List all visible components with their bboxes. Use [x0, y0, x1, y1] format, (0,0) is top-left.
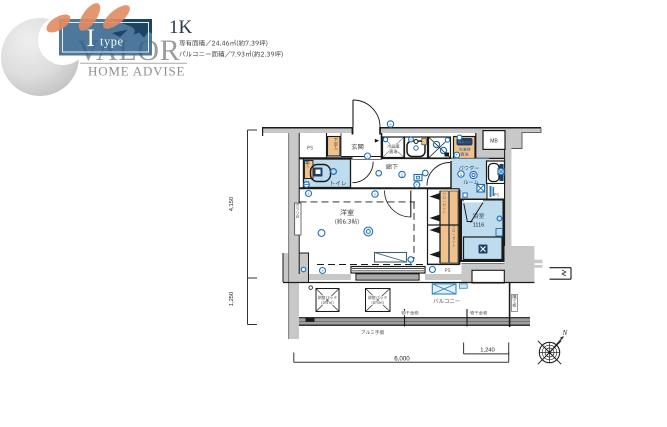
svg-text:−: − — [366, 154, 369, 159]
svg-text:1116: 1116 — [473, 223, 484, 229]
svg-text:1: 1 — [401, 172, 404, 178]
svg-text:I: I — [87, 25, 95, 52]
svg-text:1,250: 1,250 — [229, 292, 235, 307]
svg-text:+: + — [321, 268, 324, 273]
svg-text:+: + — [415, 183, 418, 188]
svg-text:N: N — [562, 329, 568, 337]
svg-text:+: + — [410, 138, 412, 142]
svg-text:HOME ADVISE: HOME ADVISE — [88, 64, 185, 79]
svg-text:1,240: 1,240 — [480, 348, 495, 354]
svg-text:1: 1 — [460, 172, 463, 178]
svg-text:+: + — [307, 191, 310, 196]
svg-text:type: type — [100, 35, 124, 49]
svg-text:+: + — [389, 123, 392, 128]
svg-text:MB: MB — [490, 139, 498, 145]
svg-text:6,000: 6,000 — [394, 355, 410, 362]
svg-text:1K: 1K — [169, 17, 193, 38]
svg-text:4,150: 4,150 — [229, 197, 235, 212]
svg-text:+: + — [374, 193, 377, 198]
